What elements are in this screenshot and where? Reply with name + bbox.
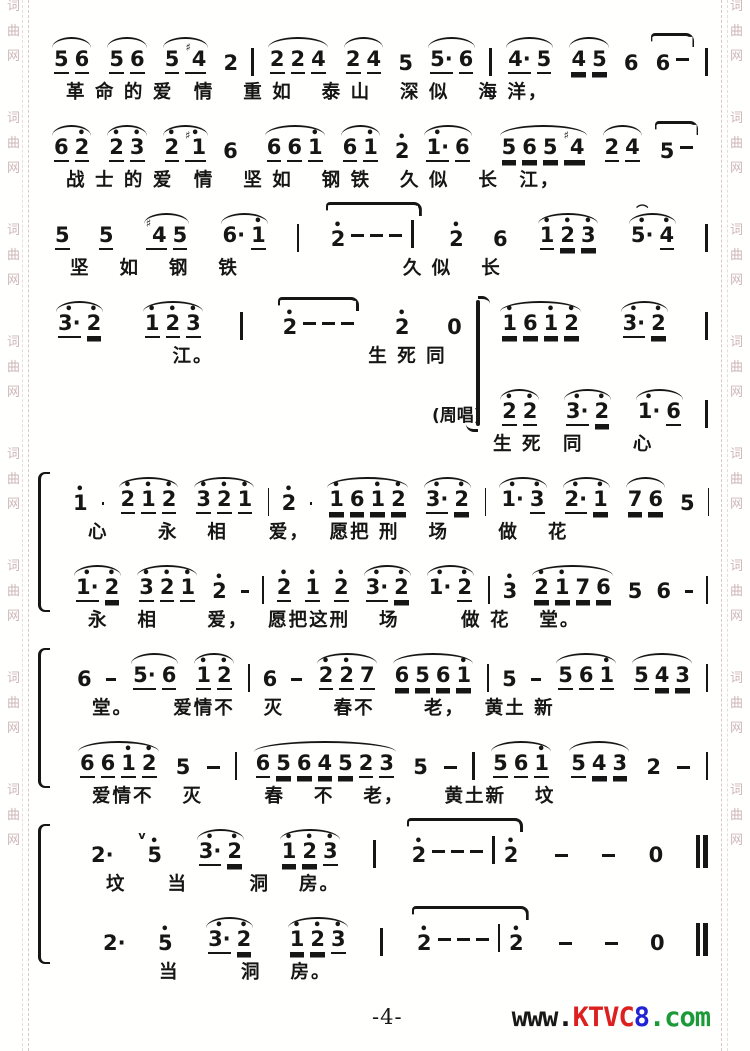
note-token: 6 [656, 581, 671, 602]
note-token: 2• [560, 225, 575, 250]
octave-dot: • [205, 831, 214, 844]
note-token: 2• [121, 489, 136, 514]
dash-token [370, 225, 383, 246]
site-name: KTVC [573, 1002, 634, 1033]
octave-dot: • [567, 303, 576, 316]
jianpu-notes-row: 56565♯422242455·64·54566 [44, 22, 714, 74]
slur-group: 1·•6 [423, 137, 472, 162]
dash-token [555, 845, 568, 866]
note-token: 5 [634, 665, 649, 690]
octave-dot: • [142, 567, 151, 580]
watermark-char: 网 [730, 498, 750, 511]
note-token: 2 [224, 53, 239, 74]
watermark-char: 词 [730, 560, 750, 573]
watermark-char: 词 [7, 784, 34, 797]
note-token: 2• [142, 753, 157, 778]
note-token: 5 [592, 49, 607, 74]
note-token: 2• [417, 933, 432, 954]
note-token: 2• [319, 665, 334, 690]
note-token: 6 [101, 753, 116, 778]
watermark-char: 词 [7, 448, 34, 461]
watermark-left: 词曲网词曲网词曲网词曲网词曲网词曲网词曲网词曲网 [0, 0, 34, 1051]
octave-dot: • [89, 303, 98, 316]
note-token: 2• [331, 229, 346, 250]
watermark-char: 词 [7, 224, 34, 237]
note-token: 6 [522, 137, 537, 162]
note-token: 3• [139, 577, 154, 602]
note-token: 1• [121, 753, 136, 778]
barline [235, 752, 238, 780]
note-token: 2 [605, 137, 620, 162]
note-token: 6 [75, 49, 90, 74]
note-token: 1·• [501, 489, 524, 510]
slur-group: 3•2•1• [136, 577, 198, 602]
note-token: 3·• [623, 313, 646, 338]
note-token: 4· [508, 49, 531, 74]
note-token: 6 [493, 229, 508, 250]
dash-token [241, 581, 249, 602]
note-token: 6 [395, 665, 410, 690]
note-token: 3• [503, 581, 518, 602]
note-token: 4• [660, 225, 675, 250]
note-token: 5 [493, 753, 508, 778]
octave-dot: • [133, 127, 142, 140]
dash-token [303, 313, 316, 334]
tie-line-group: 2• [328, 218, 420, 250]
octave-dot: • [292, 919, 301, 932]
note-token: 7 [360, 665, 375, 690]
octave-dot: • [191, 127, 200, 140]
note-token: 2 [291, 49, 306, 74]
notation-system-8: 65·61•2•62•2•76561•5561•543堂。 爱情不 灭 春不 老… [40, 638, 714, 726]
lyrics-line: 爱情不 灭 春 不 老， 黄土新 坟 [92, 782, 714, 812]
note-token: 4 [571, 49, 586, 74]
lyrics-line: 坚 如 钢 铁 久 似 长 [70, 254, 714, 284]
octave-dot: • [240, 479, 249, 492]
slur-group: 2•2• [499, 401, 540, 426]
note-token: 6 [459, 49, 474, 74]
watermark-right: 词曲网词曲网词曲网词曲网词曲网词曲网词曲网词曲网 [716, 0, 750, 1051]
note-token: 3• [196, 489, 211, 514]
octave-dot: • [597, 391, 606, 404]
dash-token [106, 669, 117, 690]
watermark-char: 词 [7, 0, 34, 13]
watermark-char: 网 [7, 834, 34, 847]
note-token: 2• [162, 489, 177, 514]
dash-token [531, 669, 542, 690]
dash-token [389, 225, 402, 246]
octave-dot: • [459, 655, 468, 668]
octave-dot: • [285, 307, 294, 320]
slur-group: ♯45 [143, 225, 191, 250]
barline [705, 400, 708, 428]
octave-dot: • [334, 919, 343, 932]
note-token: 0 [649, 845, 664, 866]
site-watermark: www.KTVC8.com [512, 1002, 710, 1033]
slur-group: 561• [555, 665, 617, 690]
dash-token [605, 933, 618, 954]
slur-group: 3•2•1• [193, 489, 255, 514]
octave-dot: • [398, 307, 407, 320]
note-token: 2• [395, 141, 410, 162]
sharp-icon: ♯ [564, 129, 569, 142]
slur-group: 543 [568, 753, 630, 778]
jianpu-notes-row: 661•2•565645235561•5432 [70, 726, 714, 778]
note-token: 1• [141, 489, 156, 514]
dash-token [677, 757, 690, 778]
dash-token [341, 313, 354, 334]
note-token: 1• [544, 313, 559, 338]
note-token: 2• [165, 137, 180, 162]
octave-dot: • [460, 567, 469, 580]
note-token: 3• [186, 313, 201, 338]
octave-dot: • [525, 391, 534, 404]
octave-dot: • [326, 831, 335, 844]
watermark-char: 网 [730, 610, 750, 623]
note-token: 3·• [566, 401, 589, 426]
lyrics-line: 战 士 的 爱 情 坚 如 钢 铁 久 似 长 江， [66, 166, 714, 196]
barline [488, 576, 490, 604]
note-token: 4 [311, 49, 326, 74]
octave-dot: • [215, 919, 224, 932]
watermark-char: 词 [730, 784, 750, 797]
slur-group: 3·•2• [563, 401, 612, 426]
notation-system-2: 62•2•3•2•♯1•6661•61•2•1·•6565♯4245战 士 的 … [40, 110, 714, 198]
note-token: 3• [331, 929, 346, 954]
note-token: 5 [413, 757, 428, 778]
notation-system-6: 1•2•1•2•3•2•1•2•1•61•2•3·•2•1·•3•2·•1•76… [40, 462, 714, 550]
octave-dot: • [629, 303, 638, 316]
slur-group: 2•1•2• [118, 489, 180, 514]
slur-group: 62• [51, 137, 92, 162]
barline [248, 664, 250, 692]
note-token: 1• [282, 841, 297, 866]
slur-group: 1•2•3• [142, 313, 204, 338]
dash-token [451, 841, 464, 862]
note-token: 1·• [638, 401, 661, 422]
dash-token [438, 929, 451, 950]
octave-dot: • [148, 303, 157, 316]
slur-group: 565♯4 [499, 137, 588, 162]
octave-dot: • [373, 479, 382, 492]
watermark-char: 网 [7, 722, 34, 735]
watermark-char: 词 [730, 672, 750, 685]
note-token: 1• [305, 577, 320, 602]
octave-dot: • [533, 479, 542, 492]
octave-dot: • [183, 567, 192, 580]
note-token: 2• [651, 313, 666, 338]
barline [492, 836, 495, 864]
octave-dot: • [77, 127, 86, 140]
note-token: 2• [412, 845, 427, 866]
slur-group: 3·•2• [205, 929, 254, 954]
note-token: 3·• [58, 313, 81, 338]
octave-dot: • [512, 923, 521, 936]
note-token: 2• [395, 317, 410, 338]
note-token: 1• [329, 489, 344, 514]
slur-group: 24 [343, 49, 384, 74]
note-token: 5 [502, 669, 517, 690]
note-token: 3• [323, 841, 338, 866]
note-token: 1·• [426, 137, 449, 162]
dash-token [680, 137, 693, 158]
octave-dot: • [199, 655, 208, 668]
note-token: 2• [160, 577, 175, 602]
slur-group: 6564523 [253, 753, 397, 778]
notation-systems: 56565♯422242455·64·54566革 命 的 爱 情 重 如 泰 … [40, 22, 714, 990]
octave-dot: • [284, 831, 293, 844]
note-token: 1• [555, 577, 570, 602]
note-token: 2• [75, 137, 90, 162]
watermark-char: 曲 [7, 585, 34, 598]
barline [489, 48, 492, 76]
jianpu-notes-row: 65·61•2•62•2•76561•5561•543 [70, 638, 714, 690]
note-token: 6 [287, 137, 302, 162]
watermark-char: 网 [730, 50, 750, 63]
note-token: 5 [502, 137, 517, 162]
note-token: 1• [73, 493, 88, 514]
note-token: 2 [359, 753, 374, 778]
barline [706, 664, 708, 692]
note-token: 5 [109, 49, 124, 74]
note-token: 3·• [426, 489, 449, 514]
note-token: 5 [338, 753, 353, 778]
note-token: 1• [308, 137, 323, 162]
slur-group: 6·1• [220, 225, 269, 250]
note-token: 5 [660, 141, 675, 162]
note-token: 2• [595, 401, 610, 426]
watermark-char: 曲 [7, 473, 34, 486]
page-number: -4- [372, 1005, 403, 1029]
note-token: 2• [217, 665, 232, 690]
barline [380, 928, 383, 956]
slur-group: 1·•6 [635, 401, 684, 426]
octave-dot: • [366, 127, 375, 140]
note-token: 6 [455, 137, 470, 162]
tie-line-group: 2• [280, 313, 358, 338]
note-token: 1• [370, 489, 385, 514]
octave-dot: • [432, 479, 441, 492]
note-token: 6 [263, 669, 278, 690]
slur-group: 2·•1• [562, 489, 611, 514]
note-token: 3 [675, 665, 690, 690]
dash-token [470, 841, 483, 862]
watermark-char: 曲 [7, 25, 34, 38]
note-token: 1• [534, 753, 549, 778]
slur-group: 661• [264, 137, 326, 162]
slur-group: 1•2•3• [537, 225, 599, 250]
note-token: 1• [145, 313, 160, 338]
octave-dot: • [654, 303, 663, 316]
note-token: 2• [504, 845, 519, 866]
watermark-char: 网 [730, 834, 750, 847]
octave-dot: • [508, 479, 517, 492]
note-token: 6 [54, 137, 69, 162]
watermark-char: 曲 [7, 697, 34, 710]
dash-token [291, 669, 302, 690]
octave-dot: • [220, 479, 229, 492]
note-token: 1·• [76, 577, 99, 602]
note-token: 5•v [147, 845, 162, 866]
octave-dot: • [199, 479, 208, 492]
octave-dot: • [168, 303, 177, 316]
note-token: 2• [509, 933, 524, 954]
note-token: 2• [534, 577, 549, 602]
note-token: 3• [130, 137, 145, 162]
lyrics-line: 生 死 同 心 [452, 430, 714, 460]
slur-group: 1•2•3• [279, 841, 341, 866]
octave-dot: • [333, 219, 342, 232]
watermark-char: 曲 [730, 585, 750, 598]
barline [251, 48, 254, 76]
note-token: 2• [105, 577, 120, 602]
note-token: 2• [454, 489, 469, 514]
note-token: 6 [77, 669, 92, 690]
slur-group: 224 [267, 49, 329, 74]
octave-dot: • [662, 215, 671, 228]
watermark-char: 曲 [7, 249, 34, 262]
note-token: 5 [54, 49, 69, 74]
note-token: 5 [55, 225, 70, 250]
note-token: 3• [581, 225, 596, 250]
dash-token [559, 933, 572, 954]
slur-group: 1•2•3• [287, 929, 349, 954]
barline [705, 312, 708, 340]
voice-pair-system: 1•2•1•2•3•2•1•2•1•61•2•3·•2•1·•3•2·•1•76… [40, 462, 714, 638]
watermark-char: 曲 [7, 809, 34, 822]
watermark-char: 网 [7, 498, 34, 511]
barline [705, 48, 708, 76]
watermark-char: 词 [7, 112, 34, 125]
dash-token [676, 49, 689, 70]
watermark-char: 词 [7, 560, 34, 573]
note-token: 2• [502, 401, 517, 426]
barline [297, 224, 300, 252]
voice-split-brace [472, 300, 484, 426]
octave-dot: • [215, 571, 224, 584]
barline [262, 576, 264, 604]
octave-dot: • [337, 567, 346, 580]
note-token: 3• [530, 489, 545, 514]
watermark-char: 网 [730, 274, 750, 287]
watermark-char: 曲 [730, 473, 750, 486]
note-token: 6 [350, 489, 365, 514]
octave-dot: • [107, 567, 116, 580]
notation-system-9: 661•2•565645235561•5432爱情不 灭 春 不 老， 黄土新 … [40, 726, 714, 814]
watermark-char: 曲 [730, 249, 750, 262]
slur-group: 24 [602, 137, 643, 162]
octave-dot: • [506, 835, 515, 848]
note-token: 6 [514, 753, 529, 778]
final-barline [696, 835, 708, 868]
dash-token [432, 841, 445, 862]
octave-dot: • [145, 743, 154, 756]
note-token: 2· [91, 845, 114, 866]
note-token: 2• [394, 577, 409, 602]
voice-pair-system: 65·61•2•62•2•76561•5561•543堂。 爱情不 灭 春不 老… [40, 638, 714, 814]
watermark-char: 网 [7, 162, 34, 175]
site-num: 8 [634, 1002, 649, 1033]
slur-group: 45 [568, 49, 609, 74]
note-token: 2• [109, 137, 124, 162]
slur-group: 61• [340, 137, 381, 162]
slur-group: 661•2• [77, 753, 160, 778]
lyrics-line: 心 永 相 爱， 愿把 刑 场 做 花 [88, 518, 714, 548]
tie-line-group: 2•2• [409, 834, 522, 866]
note-token: 5 [398, 53, 413, 74]
slur-group: 543 [631, 665, 693, 690]
notation-system-5: (周唱)2•2•3·•2•1·•6 生 死 同 心 [40, 374, 714, 462]
lyrics-line: 堂。 爱情不 灭 春不 老， 黄土 新 [92, 694, 714, 724]
note-token: 6 [436, 665, 451, 690]
note-token: 5 [165, 49, 180, 74]
octave-dot: • [342, 655, 351, 668]
note-token: 2• [302, 841, 317, 866]
note-token: 6 [223, 141, 238, 162]
note-token: 5 [543, 137, 558, 162]
octave-dot: • [394, 479, 403, 492]
note-token: 2• [166, 313, 181, 338]
octave-dot: • [420, 923, 429, 936]
sharp-icon: ♯ [146, 217, 151, 230]
dash-token [685, 581, 693, 602]
note-token: 7 [576, 577, 591, 602]
slur-group: 4·5 [505, 49, 554, 74]
note-token: 2• [457, 577, 472, 602]
notation-system-4: 3·•2•1•2•3•2•2•01•61•2•3·•2• 江。 生 死 同 [40, 286, 714, 374]
slur-group: 2•1•76 [531, 577, 614, 602]
slur-group: 2•3• [106, 137, 147, 162]
slur-group: 5·6 [130, 665, 179, 690]
note-token: 1• [593, 489, 608, 514]
watermark-char: 曲 [7, 361, 34, 374]
slur-group: 3·•2• [196, 841, 245, 866]
watermark-char: 词 [730, 336, 750, 349]
note-token: 3·• [208, 929, 231, 954]
note-token: 6 [624, 53, 639, 74]
octave-dot: • [537, 567, 546, 580]
octave-dot: • [602, 655, 611, 668]
note-token: 2• [277, 577, 292, 602]
lyrics-line: 坟 当 洞 房。 [106, 870, 714, 900]
octave-dot: • [189, 303, 198, 316]
note-token: 5· [133, 665, 156, 690]
note-token: 1• [502, 313, 517, 338]
notation-system-3: 55♯456·1•2•2•61•2•3•5·•⌒4•坚 如 钢 铁 久 似 长 [40, 198, 714, 286]
sharp-icon: ♯ [185, 41, 190, 54]
slur-group: 2•♯1• [162, 137, 210, 162]
barline [706, 576, 708, 604]
barline [472, 752, 475, 780]
watermark-char: 网 [7, 386, 34, 399]
jianpu-notes-row: 1•2•1•2•3•2•1•2•1•61•2•3·•2•1·•3•2·•1•76… [66, 462, 714, 514]
note-token: 6· [223, 225, 246, 246]
slur-group: 3·•2• [363, 577, 412, 602]
note-token: 2• [283, 317, 298, 338]
dash-token [602, 845, 615, 866]
barline [705, 224, 708, 252]
octave-dot: • [150, 835, 159, 848]
note-token: 3 [613, 753, 628, 778]
note-token: 6 [579, 665, 594, 690]
barline [240, 312, 243, 340]
octave-dot: • [505, 303, 514, 316]
watermark-char: 词 [730, 224, 750, 237]
note-token: 0 [650, 933, 665, 954]
slur-group: 56 [51, 49, 92, 74]
note-token: 5 [173, 225, 188, 250]
slur-group: 3·•2• [423, 489, 472, 514]
